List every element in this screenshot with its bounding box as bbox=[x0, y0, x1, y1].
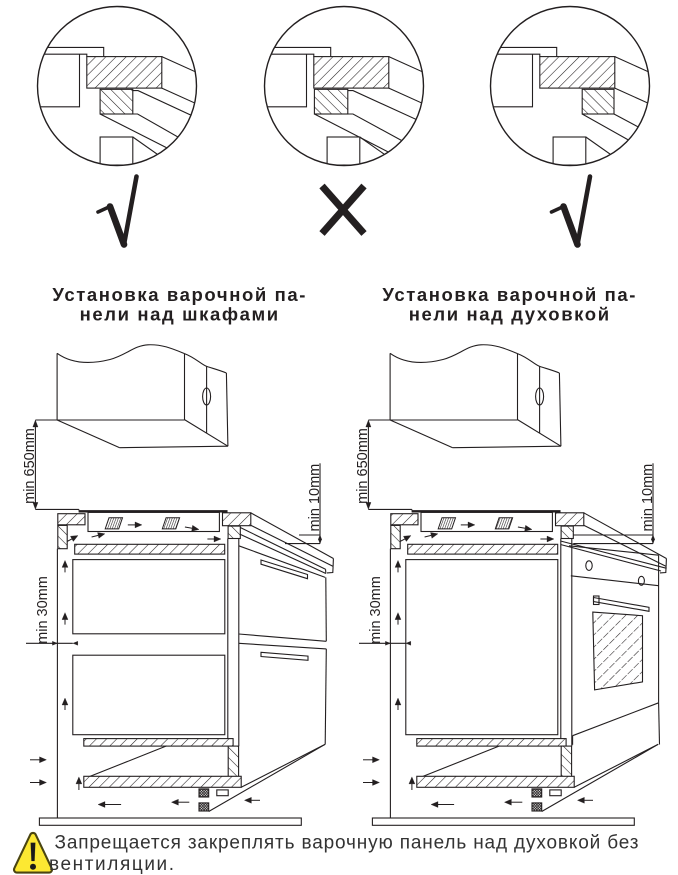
svg-text:min 650mm: min 650mm bbox=[355, 428, 371, 504]
svg-text:нели над шкафами: нели над шкафами bbox=[80, 304, 280, 325]
svg-text:min 10mm: min 10mm bbox=[640, 464, 656, 532]
svg-text:нели над духовкой: нели над духовкой bbox=[409, 304, 611, 325]
svg-text:min 650mm: min 650mm bbox=[22, 428, 38, 504]
svg-text:min 10mm: min 10mm bbox=[307, 464, 323, 532]
svg-text:min 30mm: min 30mm bbox=[35, 576, 51, 644]
svg-text:Установка варочной па-: Установка варочной па- bbox=[52, 284, 307, 305]
svg-text:вентиляции.: вентиляции. bbox=[49, 854, 176, 875]
svg-text:Установка варочной па-: Установка варочной па- bbox=[382, 284, 637, 305]
svg-text:Запрещается закреплять варочну: Запрещается закреплять варочную панель н… bbox=[55, 833, 640, 854]
svg-text:min 30mm: min 30mm bbox=[368, 576, 384, 644]
